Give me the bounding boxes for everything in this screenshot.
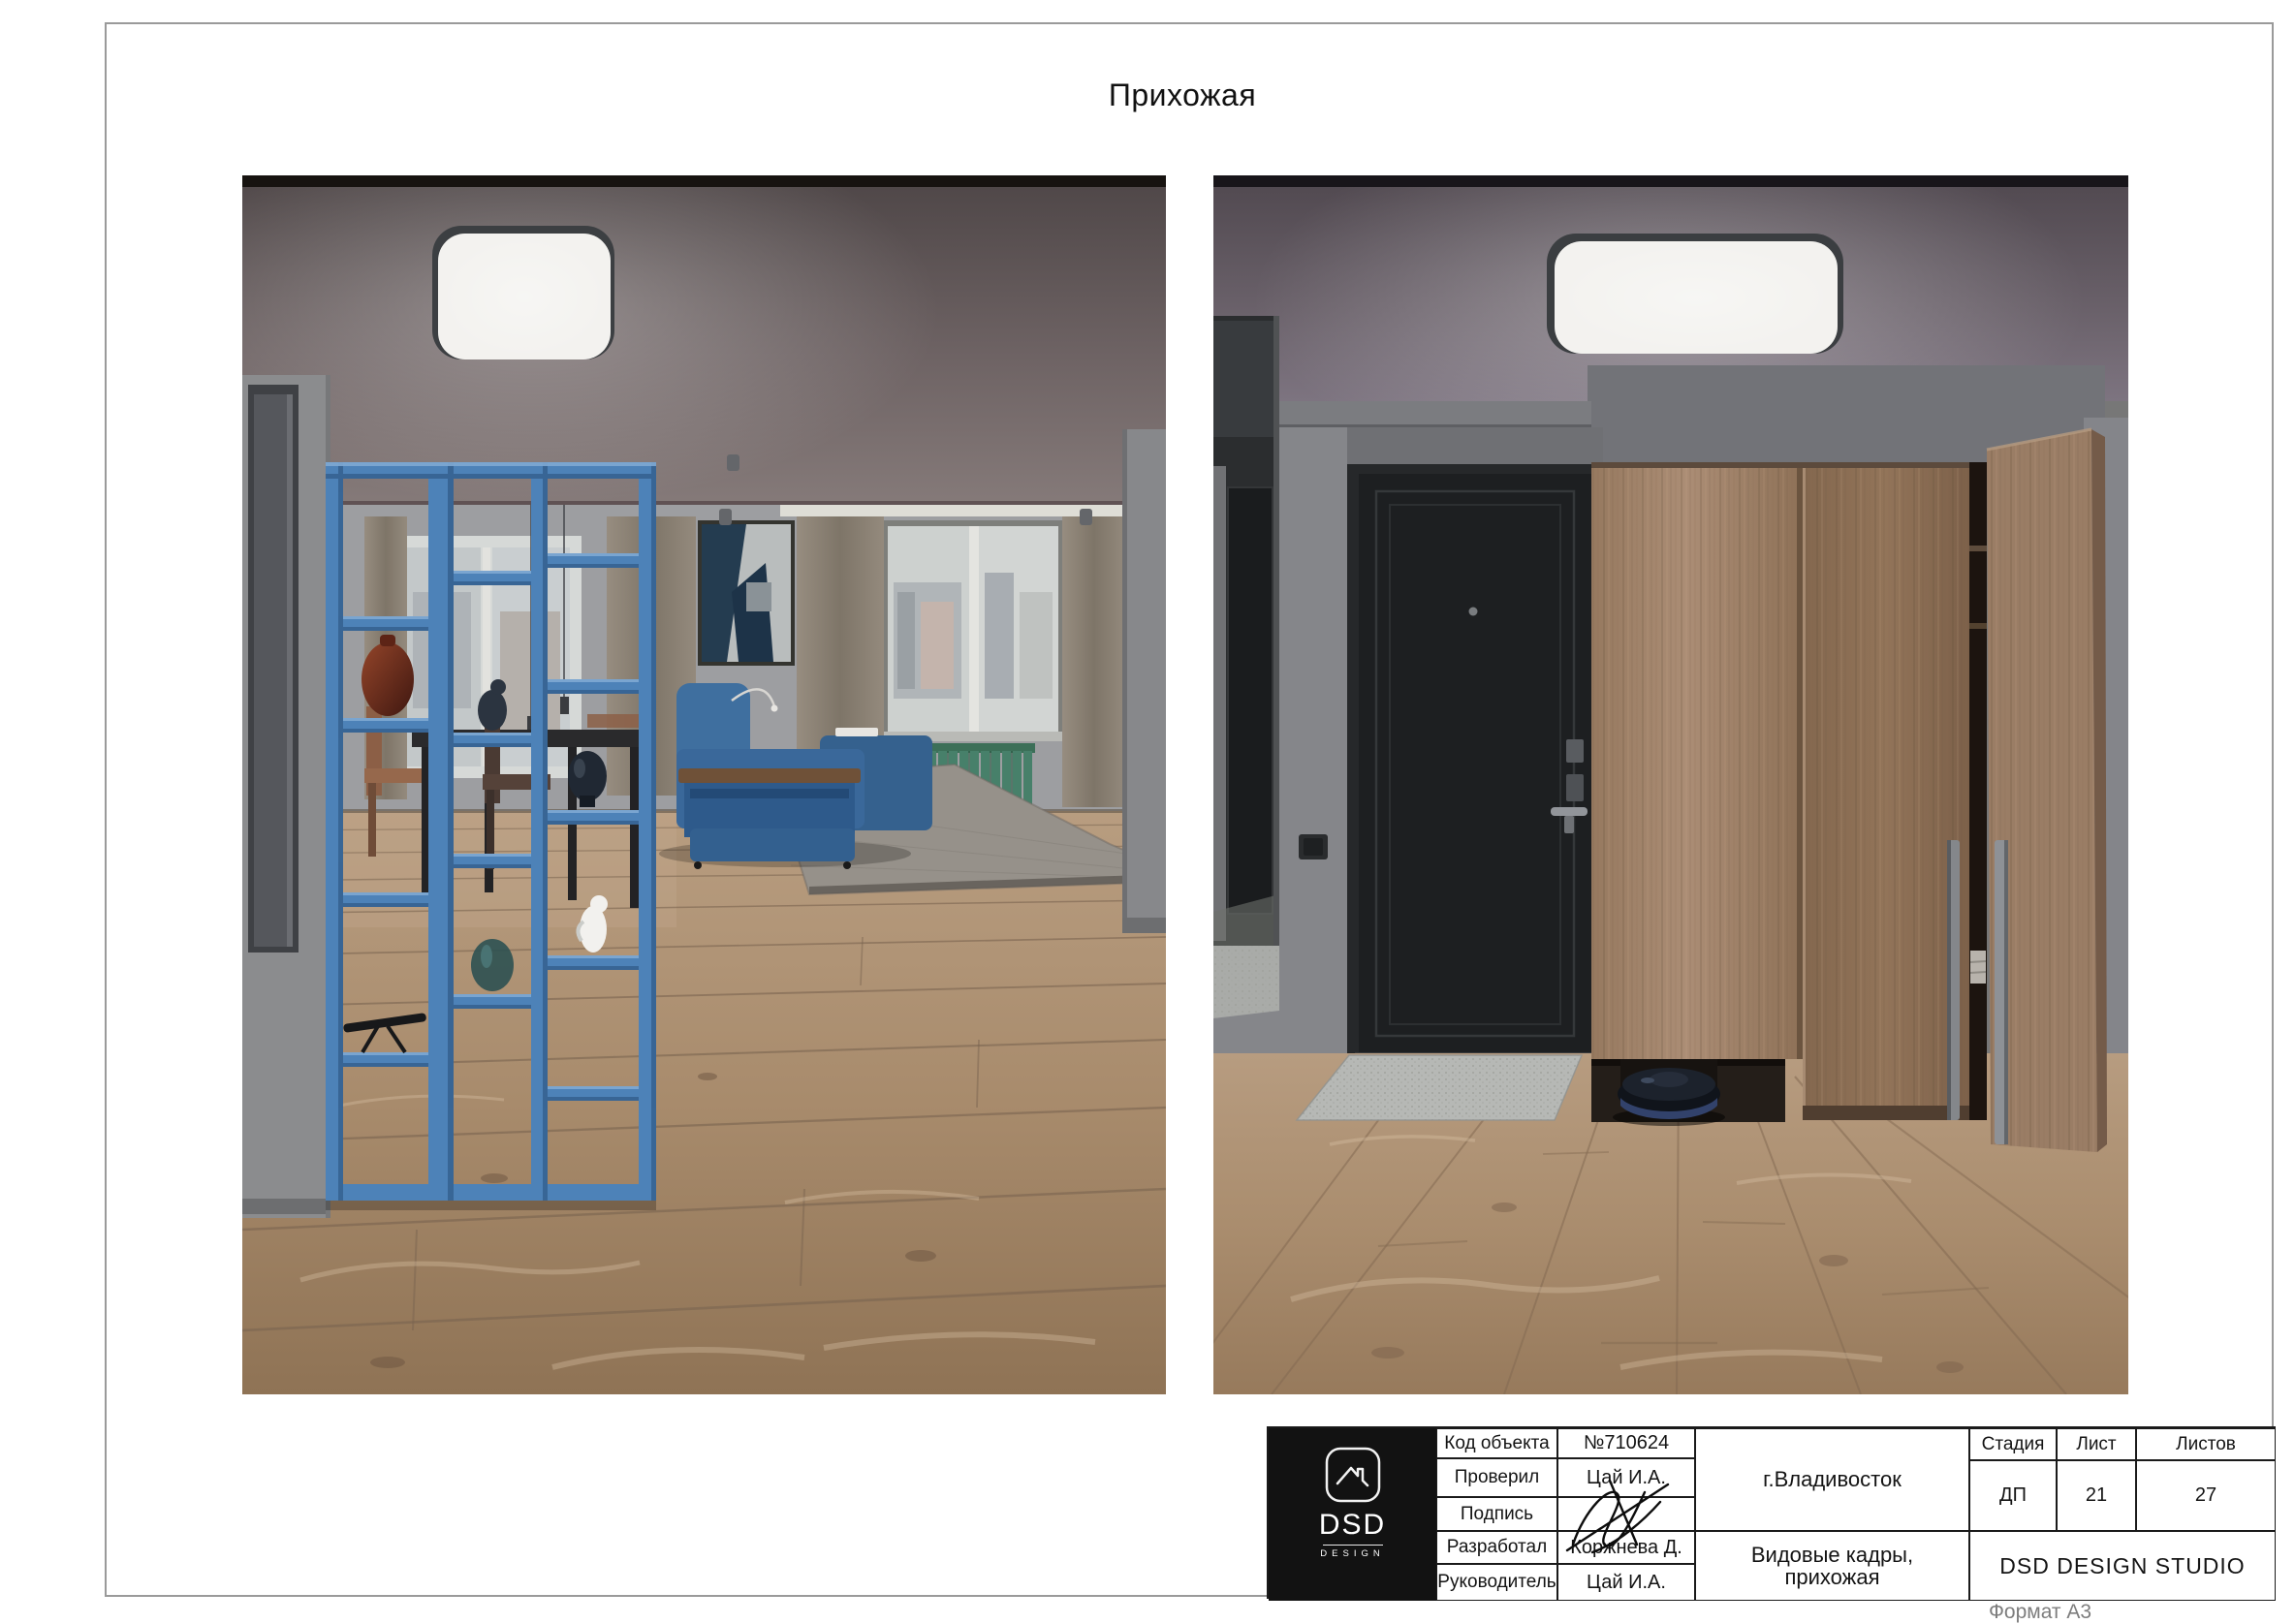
- dsd-house-icon: [1321, 1443, 1385, 1507]
- design-sheet-page: { "sheet": { "title": "Прихожая", "forma…: [0, 0, 2295, 1622]
- living-windows: [882, 520, 1064, 741]
- glass-vase: [471, 939, 514, 991]
- peephole: [1469, 608, 1478, 616]
- ceiling-led-panel: [432, 226, 614, 359]
- stamp-label-checked: Проверил: [1436, 1458, 1557, 1497]
- stamp-city: г.Владивосток: [1695, 1428, 1969, 1531]
- ceiling-led-panel: [1547, 234, 1843, 354]
- stamp-value-object-code: №710624: [1557, 1428, 1695, 1458]
- stamp-value-signature: [1557, 1497, 1695, 1531]
- robot-vacuum: [1613, 1055, 1725, 1126]
- stamp-header-stage: Стадия: [1969, 1428, 2057, 1460]
- stamp-value-sheets-total: 27: [2136, 1460, 2276, 1531]
- interior-door-left: [248, 385, 299, 953]
- wall-mirror: [1213, 316, 1279, 946]
- wardrobe: [1591, 462, 1969, 1120]
- light-switch: [1299, 834, 1328, 859]
- stamp-label-signature: Подпись: [1436, 1497, 1557, 1531]
- stamp-value-stage: ДП: [1969, 1460, 2057, 1531]
- page-title: Прихожая: [1037, 78, 1328, 113]
- stamp-value-supervisor: Цай И.А.: [1557, 1564, 1695, 1601]
- curtain-far-right: [1062, 516, 1126, 807]
- ceiling: [242, 175, 1166, 505]
- stamp-label-developed: Разработал: [1436, 1531, 1557, 1564]
- wardrobe-open-gap: [1969, 462, 1987, 1120]
- stamp-value-sheet: 21: [2057, 1460, 2136, 1531]
- stamp-header-sheet: Лист: [2057, 1428, 2136, 1460]
- stamp-label-supervisor: Руководитель: [1436, 1564, 1557, 1601]
- format-note: Формат А3: [1924, 1601, 2156, 1624]
- stamp-drawing-title: Видовые кадры, прихожая: [1695, 1531, 1969, 1601]
- stamp-value-checked: Цай И.А.: [1557, 1458, 1695, 1497]
- render-living-room-view: [242, 175, 1166, 1394]
- wall-pillar-right: [1122, 429, 1166, 933]
- entry-door: [1347, 464, 1605, 1065]
- drawing-title-line1: Видовые кадры,: [1751, 1544, 1913, 1566]
- stamp-label-object-code: Код объекта: [1436, 1428, 1557, 1458]
- stamp-value-developed: Коржнева Д.: [1557, 1531, 1695, 1564]
- living-room-scene: [242, 175, 1166, 1394]
- wall-artwork: [698, 520, 795, 666]
- logo-divider: [1323, 1545, 1383, 1546]
- stamp-studio-name: DSD DESIGN STUDIO: [1969, 1531, 2276, 1601]
- logo-subtitle-text: DESIGN: [1320, 1548, 1384, 1559]
- hallway-scene: [1213, 175, 2128, 1394]
- stamp-header-sheets-total: Листов: [2136, 1428, 2276, 1460]
- drawing-title-line2: прихожая: [1784, 1566, 1879, 1588]
- studio-logo: DSD DESIGN: [1269, 1428, 1436, 1601]
- title-block: DSD DESIGN Код объекта Проверил Подпись …: [1267, 1426, 2276, 1599]
- render-hallway-view: [1213, 175, 2128, 1394]
- logo-brand-text: DSD: [1319, 1509, 1386, 1542]
